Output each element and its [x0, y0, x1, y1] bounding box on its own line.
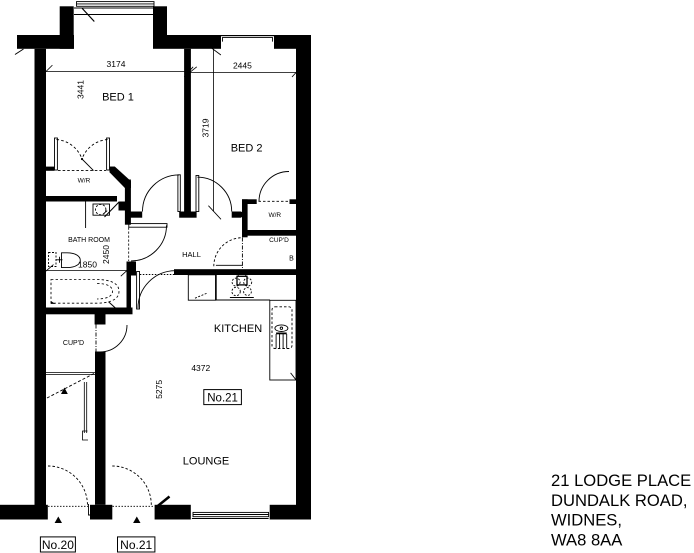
svg-text:BED 2: BED 2	[231, 143, 263, 155]
svg-text:CUP'D: CUP'D	[63, 340, 84, 347]
svg-text:No.21: No.21	[207, 393, 238, 405]
svg-text:3174: 3174	[107, 59, 126, 69]
svg-text:BATH ROOM: BATH ROOM	[68, 237, 110, 244]
svg-text:W/R: W/R	[78, 178, 91, 185]
svg-text:21 LODGE PLACE: 21 LODGE PLACE	[551, 471, 691, 490]
svg-text:5275: 5275	[154, 380, 164, 399]
svg-text:3441: 3441	[76, 80, 86, 99]
svg-text:4372: 4372	[191, 363, 210, 373]
svg-text:DUNDALK ROAD,: DUNDALK ROAD,	[551, 491, 687, 510]
svg-text:HALL: HALL	[182, 250, 201, 259]
svg-text:KITCHEN: KITCHEN	[214, 323, 262, 335]
svg-text:2450: 2450	[101, 245, 111, 264]
svg-text:LOUNGE: LOUNGE	[183, 456, 229, 468]
svg-text:WIDNES,: WIDNES,	[551, 511, 622, 530]
svg-text:BED 1: BED 1	[102, 92, 134, 104]
svg-text:WA8 8AA: WA8 8AA	[551, 530, 623, 549]
svg-text:2445: 2445	[233, 61, 252, 71]
svg-text:3719: 3719	[200, 118, 210, 137]
svg-text:W/R: W/R	[268, 212, 281, 219]
svg-text:1850: 1850	[78, 259, 97, 269]
svg-text:B: B	[289, 256, 294, 263]
svg-text:No.21: No.21	[120, 538, 152, 552]
svg-text:No.20: No.20	[42, 538, 74, 552]
svg-text:CUP'D: CUP'D	[269, 237, 289, 244]
